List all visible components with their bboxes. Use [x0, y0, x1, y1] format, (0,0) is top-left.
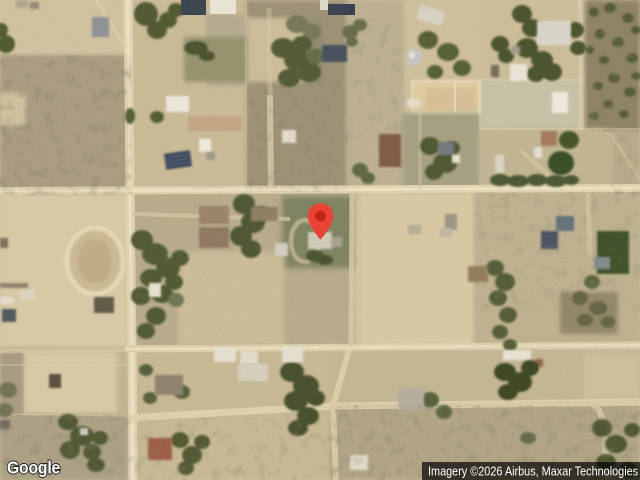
svg-text:Google: Google — [7, 458, 60, 478]
svg-text:Imagery ©2026 Airbus, Maxar Te: Imagery ©2026 Airbus, Maxar Technologies — [428, 465, 638, 479]
